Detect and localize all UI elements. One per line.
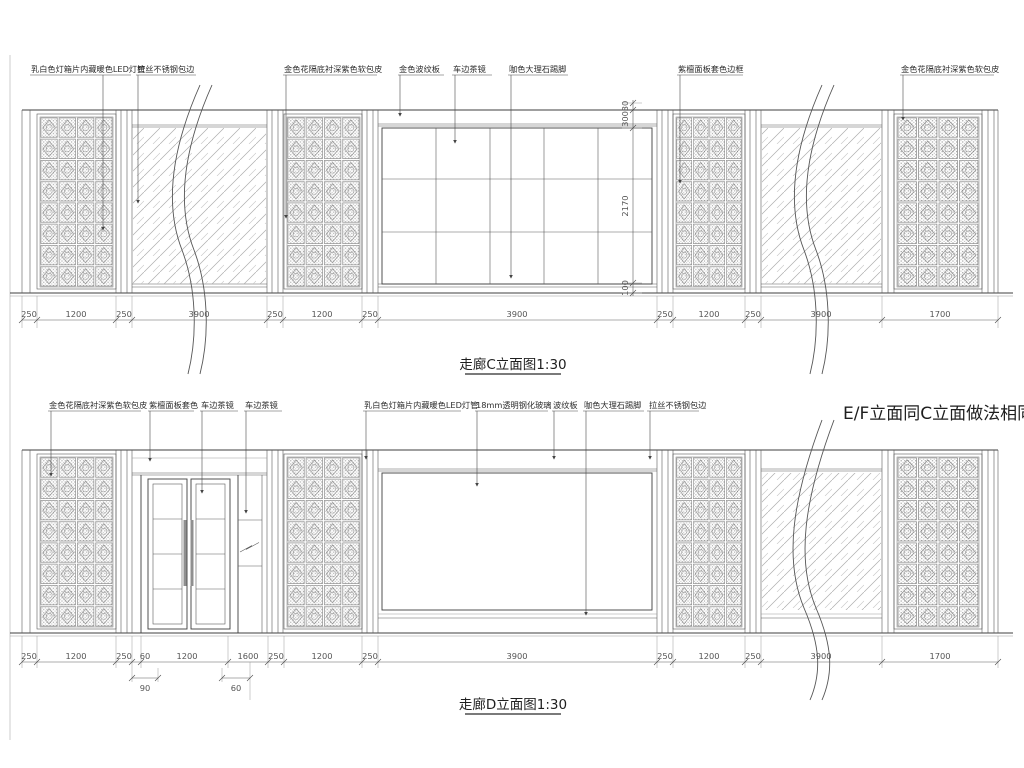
dimension-text: 3900 [810, 651, 831, 661]
material-label: 车边茶镜 [245, 400, 278, 410]
glass-panel [762, 128, 881, 284]
material-label: 乳白色灯箱片内藏暖色LED灯管 [31, 64, 145, 74]
dimension-text: 60 [231, 683, 242, 693]
dimension-text: 1700 [929, 651, 950, 661]
door-unit [132, 458, 267, 633]
drawing-title: 走廊D立面图1:30 [459, 696, 567, 713]
drawing-title: 走廊C立面图1:30 [459, 356, 566, 373]
material-labels-d: 金色花隔底衬深紫色软包皮 紫檀面板套色 车边茶镜 车边茶镜 乳白色灯箱片内藏暖色… [48, 400, 706, 615]
material-label: 车边茶镜 [201, 400, 234, 410]
dimension-text: 250 [657, 651, 673, 661]
break-symbol [240, 543, 259, 553]
door-handle [184, 520, 187, 586]
material-label: 咖色大理石踢脚 [509, 64, 566, 74]
dimension-text: 250 [268, 651, 284, 661]
dimension-text: 60 [140, 651, 151, 661]
dimension-text: 3900 [810, 309, 831, 319]
glass-panel [762, 473, 881, 610]
material-label: 拉丝不锈钢包边 [137, 64, 194, 74]
dimension-text: 250 [21, 651, 37, 661]
dimension-text: 250 [745, 309, 761, 319]
title-c: 走廊C立面图1:30 [459, 356, 566, 374]
dimension-text: 1200 [65, 309, 86, 319]
dimension-text: 100 [620, 280, 630, 296]
dimension-text: 1200 [65, 651, 86, 661]
material-label: 拉丝不锈钢包边 [649, 400, 706, 410]
dimension-text: 250 [657, 309, 673, 319]
material-label: 波纹板 [553, 400, 578, 410]
dimension-text: 30 [620, 101, 630, 112]
note-text: E/F立面同C立面做法相同 [843, 404, 1024, 424]
material-label: 紫檀面板套色边框 [678, 64, 744, 74]
dimension-text: 250 [362, 651, 378, 661]
material-label: 18mm透明钢化玻璃 [476, 400, 552, 410]
dimension-text: 1200 [311, 309, 332, 319]
dimension-text: 2170 [620, 195, 630, 216]
door-handle [191, 520, 194, 586]
dimension-text: 1200 [311, 651, 332, 661]
material-label: 紫檀面板套色 [149, 400, 198, 410]
material-label: 金色花隔底衬深紫色软包皮 [901, 64, 999, 74]
dimension-text: 250 [21, 309, 37, 319]
dimension-text: 250 [116, 309, 132, 319]
vertical-dimensions-c: 30 300 2170 100 [620, 100, 642, 296]
title-d: 走廊D立面图1:30 [459, 696, 567, 714]
dimension-text: 1200 [176, 651, 197, 661]
door-side-panel [238, 475, 262, 633]
dimensions-d: 250 1200 250 60 1200 1600 250 1200 250 3… [19, 636, 1001, 700]
glass-panel [382, 128, 652, 284]
dimension-text: 250 [745, 651, 761, 661]
dimension-text: 250 [267, 309, 283, 319]
glass-panel [133, 128, 266, 284]
dimensions-c: 250 1200 250 3900 250 1200 250 3900 250 … [19, 296, 1001, 328]
note-ef: E/F立面同C立面做法相同 [843, 404, 1024, 424]
elevation-c: 乳白色灯箱片内藏暖色LED灯管 拉丝不锈钢包边 金色花隔底衬深紫色软包皮 金色波… [10, 64, 1013, 374]
material-label: 车边茶镜 [453, 64, 486, 74]
glass-walls-d [378, 469, 882, 618]
dimension-text: 1600 [237, 651, 258, 661]
dimension-text: 3900 [188, 309, 209, 319]
glass-panel [382, 473, 652, 610]
dimension-text: 3900 [506, 651, 527, 661]
corridor-elevation-drawing: 乳白色灯箱片内藏暖色LED灯管 拉丝不锈钢包边 金色花隔底衬深紫色软包皮 金色波… [0, 0, 1024, 768]
dimension-text: 250 [116, 651, 132, 661]
elevation-d: 金色花隔底衬深紫色软包皮 紫檀面板套色 车边茶镜 车边茶镜 乳白色灯箱片内藏暖色… [10, 400, 1024, 714]
dimension-text: 1700 [929, 309, 950, 319]
material-label: 金色花隔底衬深紫色软包皮 [284, 64, 382, 74]
dimension-text: 300 [620, 111, 630, 127]
dimension-text: 3900 [506, 309, 527, 319]
cad-sheet: 乳白色灯箱片内藏暖色LED灯管 拉丝不锈钢包边 金色花隔底衬深紫色软包皮 金色波… [0, 0, 1024, 768]
dimension-text: 250 [362, 309, 378, 319]
material-label: 金色波纹板 [399, 64, 440, 74]
dimension-text: 1200 [698, 309, 719, 319]
dimension-text: 1200 [698, 651, 719, 661]
dimension-text: 90 [140, 683, 151, 693]
material-label: 乳白色灯箱片内藏暖色LED灯管 [364, 400, 478, 410]
material-label: 金色花隔底衬深紫色软包皮 [49, 400, 147, 410]
material-label: 咖色大理石踢脚 [584, 400, 641, 410]
glass-walls-c [132, 124, 882, 287]
